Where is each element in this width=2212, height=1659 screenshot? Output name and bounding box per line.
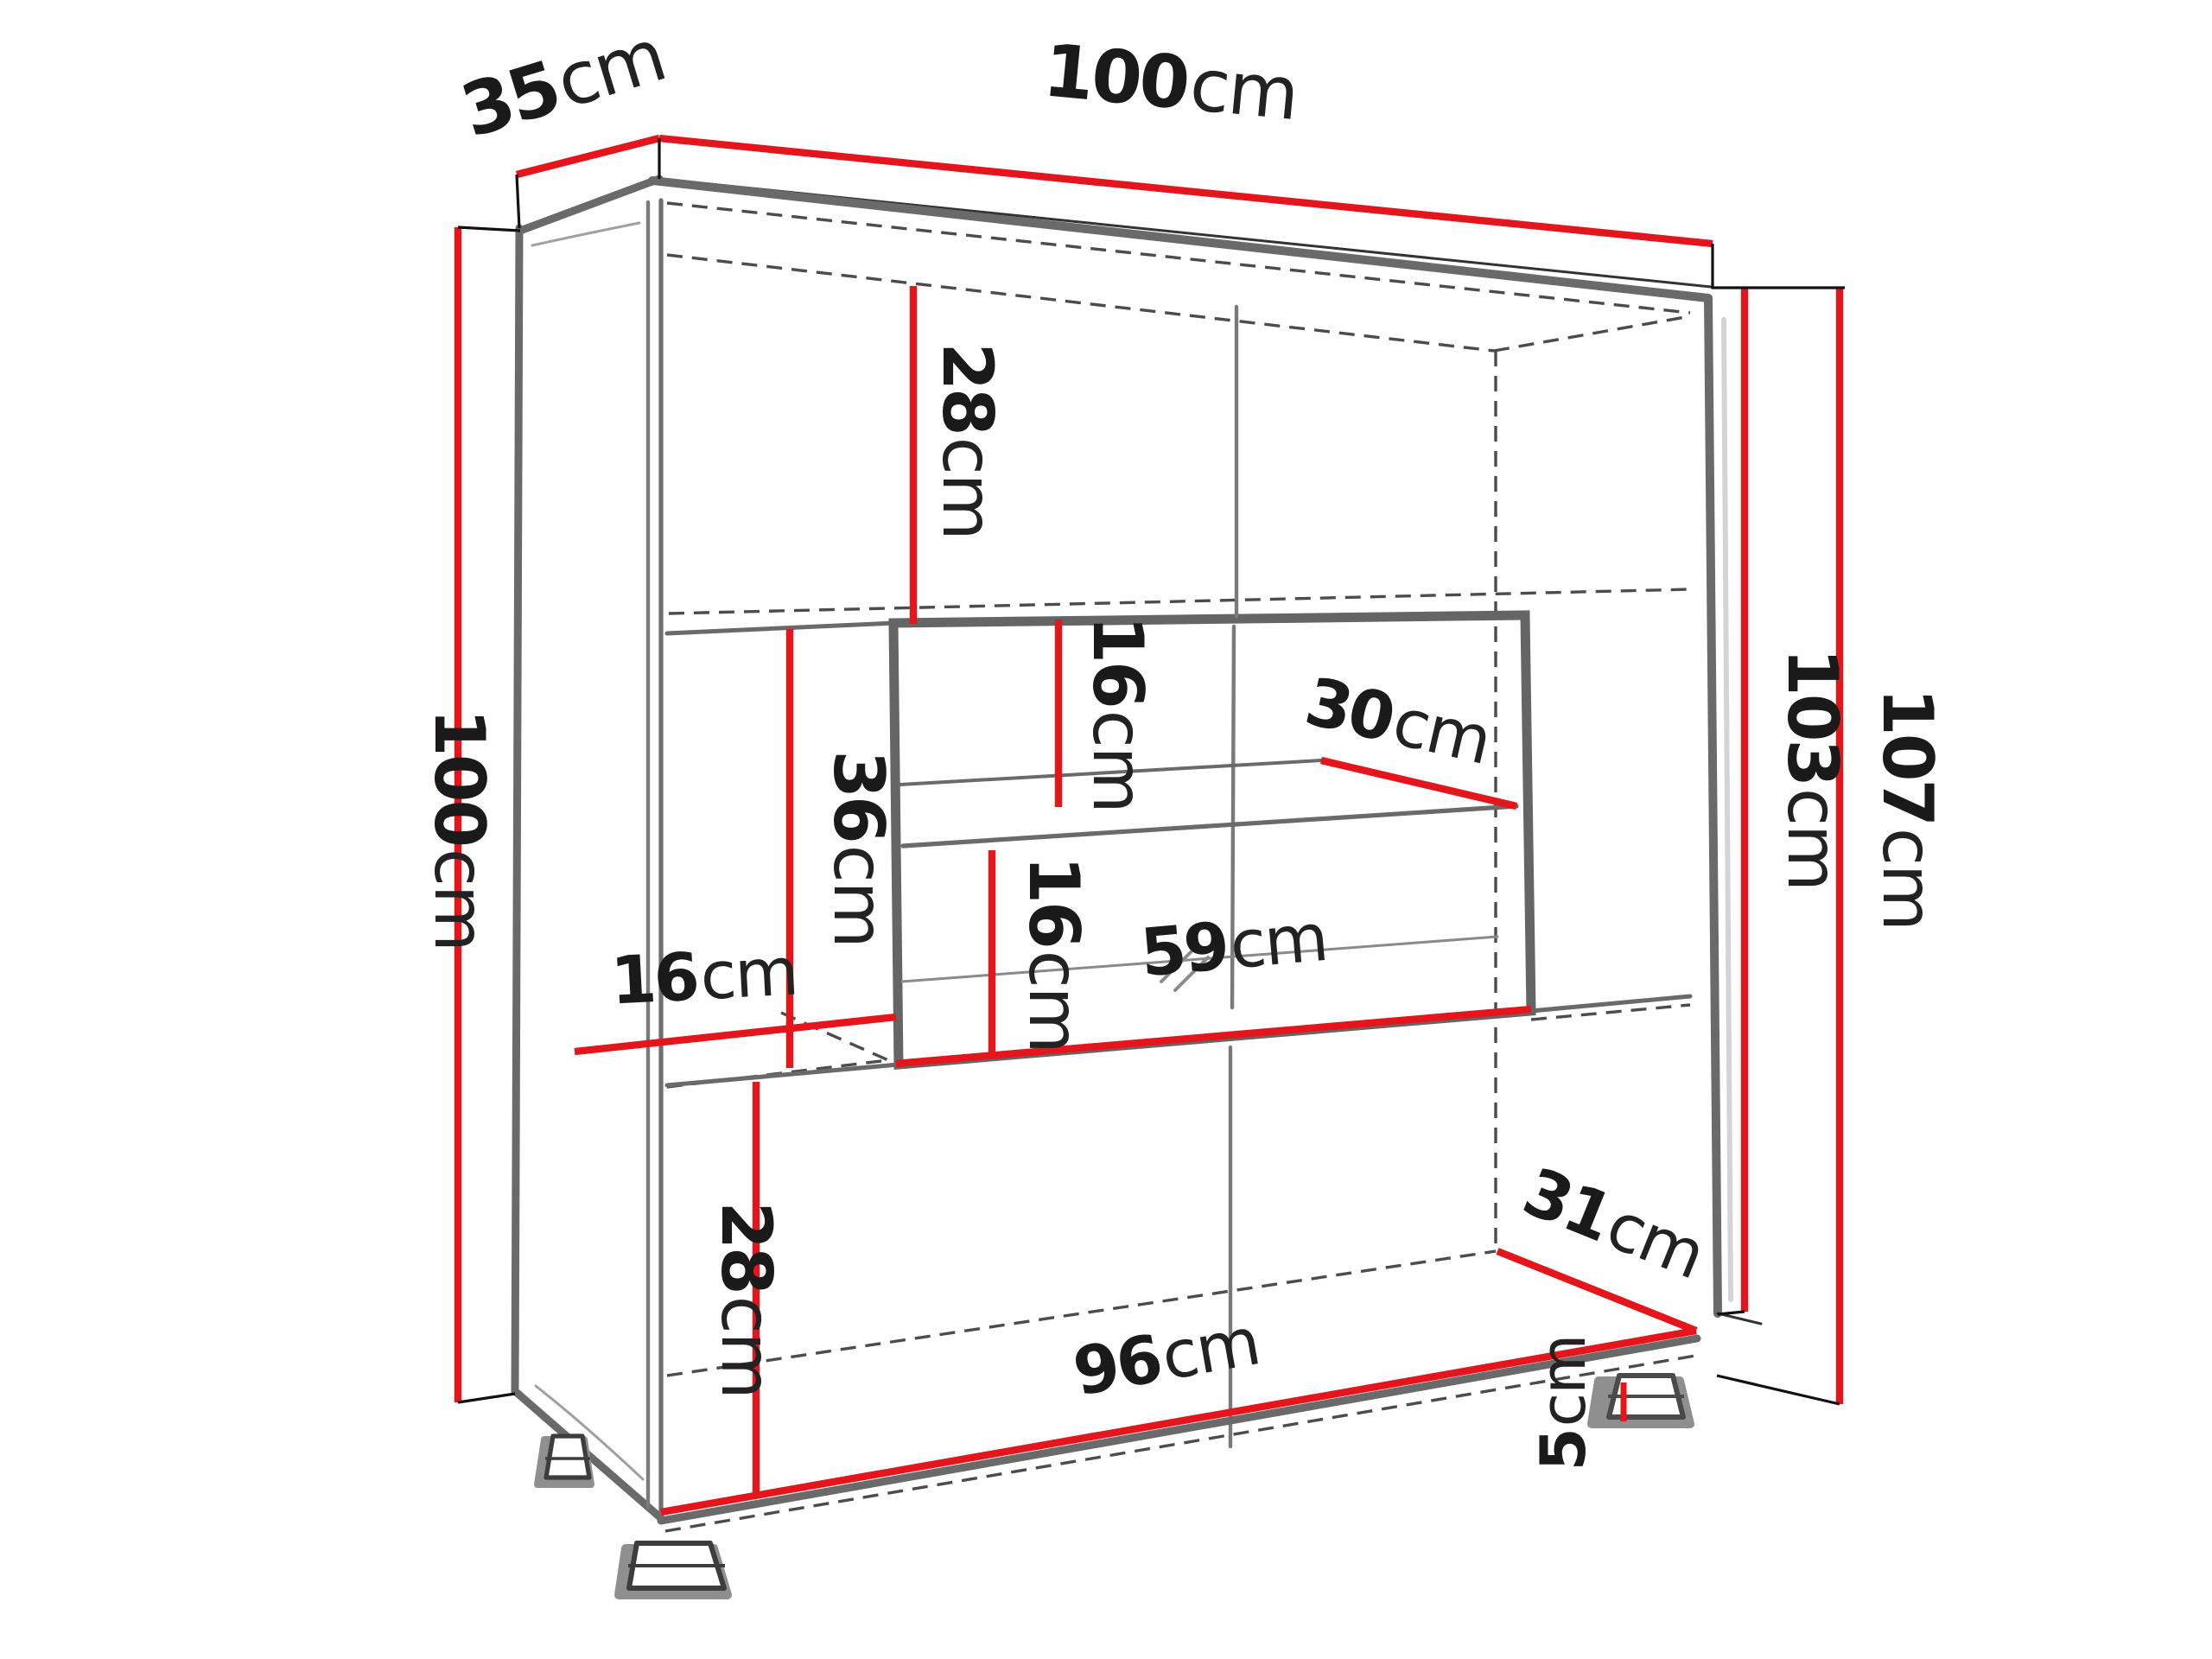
tick-width-right-step bbox=[1713, 244, 1845, 288]
back-left-foot bbox=[546, 1436, 589, 1478]
tick-total-bottom bbox=[1717, 1376, 1840, 1404]
label-height-left: 100cm bbox=[419, 709, 499, 950]
shelf2-front-edge-left bbox=[667, 1065, 899, 1085]
cabinet-dimension-diagram: 35cm 100cm 100cm 28cm 16cm 30cm 36cm 16c… bbox=[0, 0, 2212, 1659]
label-foot-height: 5cm bbox=[1527, 1336, 1599, 1471]
dim-line-glass-depth bbox=[1321, 760, 1516, 806]
interior-ceiling-back-edge bbox=[667, 203, 1690, 313]
label-top-compartment: 28cm bbox=[927, 342, 1007, 538]
label-showcase-lower: 16cm bbox=[1014, 855, 1094, 1052]
label-bottom-width: 96cm bbox=[1068, 1302, 1265, 1410]
top-front-edge bbox=[652, 181, 1708, 298]
left-panel-outer-edge bbox=[515, 228, 519, 1391]
label-left-gap: 16cm bbox=[609, 932, 799, 1019]
diagram-stage: 35cm 100cm 100cm 28cm 16cm 30cm 36cm 16c… bbox=[0, 0, 2212, 1659]
dim-line-left-gap bbox=[575, 1017, 896, 1052]
tick-height-left-bottom bbox=[458, 1394, 515, 1402]
cabinet-structure bbox=[515, 179, 1761, 1521]
label-middle-left: 36cm bbox=[818, 750, 899, 946]
tick-depth-left bbox=[517, 175, 519, 228]
feet bbox=[537, 1376, 1690, 1595]
label-bottom-compartment: 28cm bbox=[706, 1201, 786, 1397]
dim-line-depth-top bbox=[517, 138, 659, 175]
label-depth-top: 35cm bbox=[452, 12, 674, 154]
right-edge bbox=[1708, 298, 1718, 1313]
label-carcass-height: 103cm bbox=[1772, 648, 1853, 890]
label-showcase-width: 59cm bbox=[1137, 899, 1330, 991]
dim-line-width-top bbox=[659, 138, 1713, 244]
glass-shelf-front-edge bbox=[903, 806, 1516, 846]
label-total-height: 107cm bbox=[1867, 688, 1948, 930]
back-panel-top-right-edge bbox=[1494, 316, 1690, 351]
shelf1-back-edge bbox=[669, 589, 1690, 613]
left-panel-top-highlight bbox=[532, 223, 639, 245]
dimension-lines bbox=[458, 138, 1840, 1512]
shelf1-front-edge-left bbox=[667, 623, 895, 633]
back-panel-top-edge bbox=[667, 255, 1494, 351]
shelf2-front-edge-right bbox=[1531, 996, 1690, 1011]
label-width-top: 100cm bbox=[1040, 28, 1301, 137]
label-showcase-upper: 16cm bbox=[1077, 615, 1158, 811]
right-edge-shadow bbox=[1724, 320, 1731, 1300]
tick-height-left-top bbox=[458, 227, 520, 231]
